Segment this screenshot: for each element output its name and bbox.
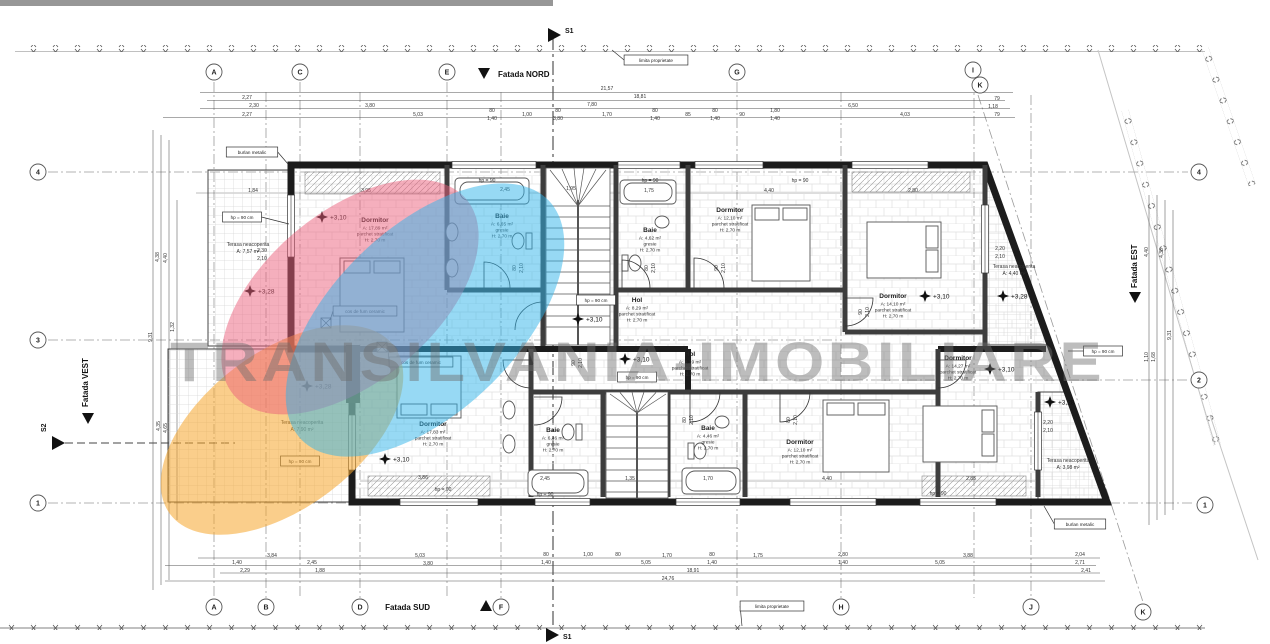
dimension-text: 1,70 bbox=[602, 112, 612, 118]
room-area: A: 3,98 m² bbox=[1056, 465, 1079, 471]
dimension-text: 4,40 bbox=[764, 188, 774, 194]
dimension-text: 2,80 bbox=[838, 552, 848, 558]
room-name: Hol bbox=[632, 297, 643, 304]
dimension-text: 3,84 bbox=[267, 553, 277, 559]
dimension-text: 2,45 bbox=[307, 560, 317, 566]
grid-bubble: C bbox=[292, 64, 308, 80]
bed bbox=[752, 205, 810, 281]
dimension-text: 1,70 bbox=[703, 476, 713, 482]
dimension-text: 80 bbox=[615, 552, 621, 558]
callout-text: hp = 90 cm bbox=[231, 215, 254, 220]
dimension-text: 1,00 bbox=[522, 112, 532, 118]
sink bbox=[655, 216, 669, 228]
watermark-text: TRANSILVANIA-IMOBILIARE bbox=[170, 330, 1105, 393]
grid-bubble-label: A bbox=[211, 70, 216, 77]
dimension-text: 1,35 bbox=[625, 476, 635, 482]
dimension-text: 90 bbox=[858, 309, 864, 315]
dimension-text: hp = 90 bbox=[930, 491, 947, 497]
grid-bubble: H bbox=[833, 599, 849, 615]
dimension-text: 4,40 bbox=[1144, 247, 1150, 257]
room-area: A: 6,46 m² bbox=[542, 436, 565, 442]
bed bbox=[923, 406, 997, 462]
grid-bubble-label: 4 bbox=[36, 170, 40, 177]
dimension-text: 3,80 bbox=[423, 561, 433, 567]
dimension-text: 4,40 bbox=[822, 476, 832, 482]
dimension-text: 2,04 bbox=[1075, 552, 1085, 558]
top-edge-bar bbox=[0, 0, 553, 6]
dimension-text: 2,41 bbox=[1081, 568, 1091, 574]
dimension-text: 5,05 bbox=[935, 560, 945, 566]
facade-south-label: Fatada SUD bbox=[385, 603, 430, 612]
dimension-text: 2,80 bbox=[908, 188, 918, 194]
elevation-value: +3,10 bbox=[586, 316, 603, 323]
grid-bubble: K bbox=[972, 77, 988, 93]
dimension-text: 2,85 bbox=[966, 476, 976, 482]
dimension-text: 79 bbox=[994, 96, 1000, 102]
sink bbox=[503, 401, 515, 419]
grid-bubble: A bbox=[206, 599, 222, 615]
dimension-text: 2,29 bbox=[240, 568, 250, 574]
dimension-text: 90 bbox=[714, 265, 720, 271]
dimension-text: 80 bbox=[644, 265, 650, 271]
elevation-value: +3,28 bbox=[1058, 399, 1075, 406]
dimension-text: 85 bbox=[685, 112, 691, 118]
room-name: Baie bbox=[546, 427, 560, 434]
dimension-text: 80 bbox=[489, 108, 495, 114]
room-name: Dormitor bbox=[716, 207, 744, 214]
room-finish: parchet stratificat bbox=[619, 312, 656, 318]
dimension-text: 80 bbox=[786, 417, 792, 423]
dimension-text: 80 bbox=[543, 552, 549, 558]
floor-plan-page: Fatada NORD Fatada SUD Fatada VEST Fatad… bbox=[0, 0, 1270, 644]
dimension-text: 1,68 bbox=[1151, 352, 1157, 362]
dimension-text: 2,71 bbox=[1075, 560, 1085, 566]
dimension-text: 2,10 bbox=[257, 256, 267, 262]
grid-bubble-label: F bbox=[499, 605, 504, 612]
elevation-value: +3,28 bbox=[1011, 293, 1028, 300]
callout-text: hp = 90 cm bbox=[585, 298, 608, 303]
dimension-text: 2,27 bbox=[242, 112, 252, 118]
room-height: H: 2,70 m bbox=[423, 442, 444, 448]
dimension-text: 1,84 bbox=[248, 188, 258, 194]
grid-bubble-label: B bbox=[263, 605, 268, 612]
dimension-text: hp = 90 bbox=[537, 492, 554, 498]
dimension-text: 80 bbox=[709, 552, 715, 558]
grid-bubble: E bbox=[439, 64, 455, 80]
dimension-text: 80 bbox=[682, 417, 688, 423]
dimension-text: 9,31 bbox=[1167, 330, 1173, 340]
room-height: H: 2,70 m bbox=[627, 318, 648, 324]
dimension-text: 1,18 bbox=[988, 104, 998, 110]
grid-bubble-label: I bbox=[972, 68, 974, 75]
section-s2-label: S2 bbox=[41, 423, 48, 432]
dimension-text: 7,80 bbox=[587, 102, 597, 108]
dimension-text: 1,00 bbox=[583, 552, 593, 558]
dimension-text: 1,95 bbox=[566, 186, 576, 192]
dimension-text: 90 bbox=[739, 112, 745, 118]
dimension-text: 3,86 bbox=[418, 475, 428, 481]
dimension-text: 4,35 bbox=[156, 421, 162, 431]
dimension-text: 1,40 bbox=[707, 560, 717, 566]
room-area: A: 8,29 m² bbox=[626, 306, 649, 312]
grid-bubble: 4 bbox=[30, 164, 46, 180]
dimension-text: 1,75 bbox=[644, 188, 654, 194]
dimension-text: 2,10 bbox=[995, 254, 1005, 260]
dimension-text: 6,50 bbox=[848, 103, 858, 109]
floor-plan-canvas: Fatada NORD Fatada SUD Fatada VEST Fatad… bbox=[0, 0, 1270, 644]
dimension-text: 24,76 bbox=[662, 576, 675, 582]
toilet bbox=[622, 255, 641, 271]
dimension-text: hp = 90 bbox=[479, 178, 496, 184]
grid-bubble: B bbox=[258, 599, 274, 615]
room-area: A: 4,40 m² bbox=[1002, 271, 1025, 277]
grid-bubble: F bbox=[493, 599, 509, 615]
grid-bubble-label: 3 bbox=[36, 338, 40, 345]
room-height: H: 2,70 m bbox=[640, 248, 661, 254]
grid-bubble-label: A bbox=[211, 605, 216, 612]
grid-bubble: 2 bbox=[1191, 372, 1207, 388]
section-s1-bottom-label: S1 bbox=[563, 634, 572, 641]
dimension-text: 4,65 bbox=[163, 423, 169, 433]
dimension-text: 2,20 bbox=[1043, 420, 1053, 426]
dimension-text: 2,27 bbox=[242, 95, 252, 101]
dimension-text: 3,88 bbox=[963, 553, 973, 559]
room-finish: parchet stratificat bbox=[712, 222, 749, 228]
grid-bubble-label: 2 bbox=[1197, 378, 1201, 385]
callout-box: hp = 90 cm bbox=[577, 295, 616, 305]
room-name: Dormitor bbox=[786, 439, 814, 446]
room-finish: gresie bbox=[643, 242, 656, 248]
room-name: Baie bbox=[701, 425, 715, 432]
room-area: A: 12,10 m² bbox=[718, 216, 743, 222]
room-height: H: 2,70 m bbox=[790, 460, 811, 466]
dimension-text: 5,05 bbox=[641, 560, 651, 566]
grid-bubble: 1 bbox=[1197, 497, 1213, 513]
dimension-text: 4,03 bbox=[900, 112, 910, 118]
grid-bubble: D bbox=[352, 599, 368, 615]
grid-bubble-label: G bbox=[734, 70, 740, 77]
dimension-text: 1,40 bbox=[710, 116, 720, 122]
grid-bubble-label: K bbox=[977, 83, 982, 90]
dimension-text: 5,03 bbox=[415, 553, 425, 559]
dimension-text: 5,03 bbox=[413, 112, 423, 118]
grid-bubble: I bbox=[965, 62, 981, 78]
dimension-text: 2,10 bbox=[721, 263, 727, 273]
elevation-value: +3,10 bbox=[933, 293, 950, 300]
dimension-text: 1,40 bbox=[770, 116, 780, 122]
room-name: Terasa neacoperita bbox=[993, 264, 1036, 270]
staircase-lower bbox=[606, 392, 668, 498]
grid-bubble-label: C bbox=[297, 70, 302, 77]
dimension-text: 2,10 bbox=[865, 307, 871, 317]
sink bbox=[503, 435, 515, 453]
callout-text: limita proprietate bbox=[755, 604, 789, 609]
dimension-text: 2,10 bbox=[793, 415, 799, 425]
dimension-text: 1,40 bbox=[232, 560, 242, 566]
grid-bubble-label: H bbox=[838, 605, 843, 612]
dimension-text: 21,57 bbox=[601, 86, 614, 92]
dimension-text: 1,88 bbox=[315, 568, 325, 574]
dimension-text: 1,70 bbox=[662, 553, 672, 559]
room-area: A: 4,62 m² bbox=[639, 236, 662, 242]
grid-bubble-label: 1 bbox=[36, 501, 40, 508]
sink bbox=[715, 416, 729, 428]
callout-text: burlan metalic bbox=[1066, 522, 1095, 527]
room-finish: parchet stratificat bbox=[415, 436, 452, 442]
dimension-text: 1,40 bbox=[838, 560, 848, 566]
facade-north-label: Fatada NORD bbox=[498, 70, 550, 79]
dimension-text: 80 bbox=[652, 108, 658, 114]
dimension-text: 1,40 bbox=[487, 116, 497, 122]
dimension-text: 3,80 bbox=[553, 116, 563, 122]
dimension-text: 2,30 bbox=[249, 103, 259, 109]
grid-bubble-label: D bbox=[357, 605, 362, 612]
room-height: H: 2,70 m bbox=[698, 446, 719, 452]
grid-bubble: 3 bbox=[30, 332, 46, 348]
dimension-text: 2,10 bbox=[689, 415, 695, 425]
grid-bubble: A bbox=[206, 64, 222, 80]
dimension-text: 1,40 bbox=[650, 116, 660, 122]
grid-bubble-label: 4 bbox=[1197, 170, 1201, 177]
room-area: A: 4,46 m² bbox=[697, 434, 720, 440]
dimension-text: 18,91 bbox=[687, 568, 700, 574]
grid-bubble: G bbox=[729, 64, 745, 80]
grid-bubble: K bbox=[1135, 604, 1151, 620]
dimension-text: 1,10 bbox=[1144, 352, 1150, 362]
dimension-text: 80 bbox=[712, 108, 718, 114]
toilet bbox=[562, 424, 582, 440]
elevation-value: +3,10 bbox=[393, 456, 410, 463]
dimension-text: 3,80 bbox=[365, 103, 375, 109]
dimension-text: 4,38 bbox=[155, 252, 161, 262]
dimension-text: hp = 90 bbox=[642, 178, 659, 184]
room-height: H: 2,70 m bbox=[543, 448, 564, 454]
dimension-text: hp = 90 bbox=[435, 487, 452, 493]
grid-bubble-label: J bbox=[1029, 605, 1033, 612]
dimension-text: 2,10 bbox=[651, 263, 657, 273]
grid-bubble-label: K bbox=[1140, 610, 1145, 617]
grid-bubble: 1 bbox=[30, 495, 46, 511]
facade-west-label: Fatada VEST bbox=[81, 358, 90, 407]
callout-text: burlan metalic bbox=[238, 150, 267, 155]
section-s1-top-label: S1 bbox=[565, 28, 574, 35]
dimension-text: 80 bbox=[555, 108, 561, 114]
callout-text: limita proprietate bbox=[639, 58, 673, 63]
grid-bubble-label: E bbox=[445, 70, 450, 77]
dimension-text: 1,40 bbox=[541, 560, 551, 566]
dimension-text: 4,38 bbox=[1159, 248, 1165, 258]
grid-bubble: J bbox=[1023, 599, 1039, 615]
dimension-text: 1,80 bbox=[770, 108, 780, 114]
grid-bubble: 4 bbox=[1191, 164, 1207, 180]
bed bbox=[867, 222, 941, 278]
grid-bubble-label: 1 bbox=[1203, 503, 1207, 510]
room-area: A: 14,10 m² bbox=[881, 302, 906, 308]
dimension-text: 1,75 bbox=[753, 553, 763, 559]
dimension-text: 18,81 bbox=[634, 94, 647, 100]
room-finish: parchet stratificat bbox=[875, 308, 912, 314]
room-area: A: 7,57 m² bbox=[236, 249, 259, 255]
dimension-text: 9,31 bbox=[148, 332, 154, 342]
dimension-text: 4,40 bbox=[163, 253, 169, 263]
room-area: A: 12,10 m² bbox=[788, 448, 813, 454]
room-name: Terasa neacoperita bbox=[227, 242, 270, 248]
room-name: Dormitor bbox=[879, 293, 907, 300]
room-finish: parchet stratificat bbox=[782, 454, 819, 460]
room-finish: gresie bbox=[701, 440, 714, 446]
dimension-text: 2,45 bbox=[540, 476, 550, 482]
dimension-text: 2,20 bbox=[995, 246, 1005, 252]
bed bbox=[823, 400, 889, 472]
room-name: Terasa neacoperita bbox=[1047, 458, 1090, 464]
facade-east-label: Fatada EST bbox=[1130, 244, 1139, 288]
room-height: H: 2,70 m bbox=[883, 314, 904, 320]
dimension-text: 2,10 bbox=[1043, 428, 1053, 434]
dimension-text: 79 bbox=[994, 112, 1000, 118]
room-finish: gresie bbox=[546, 442, 559, 448]
dimension-text: hp = 90 bbox=[792, 178, 809, 184]
room-height: H: 2,70 m bbox=[720, 228, 741, 234]
room-name: Baie bbox=[643, 227, 657, 234]
